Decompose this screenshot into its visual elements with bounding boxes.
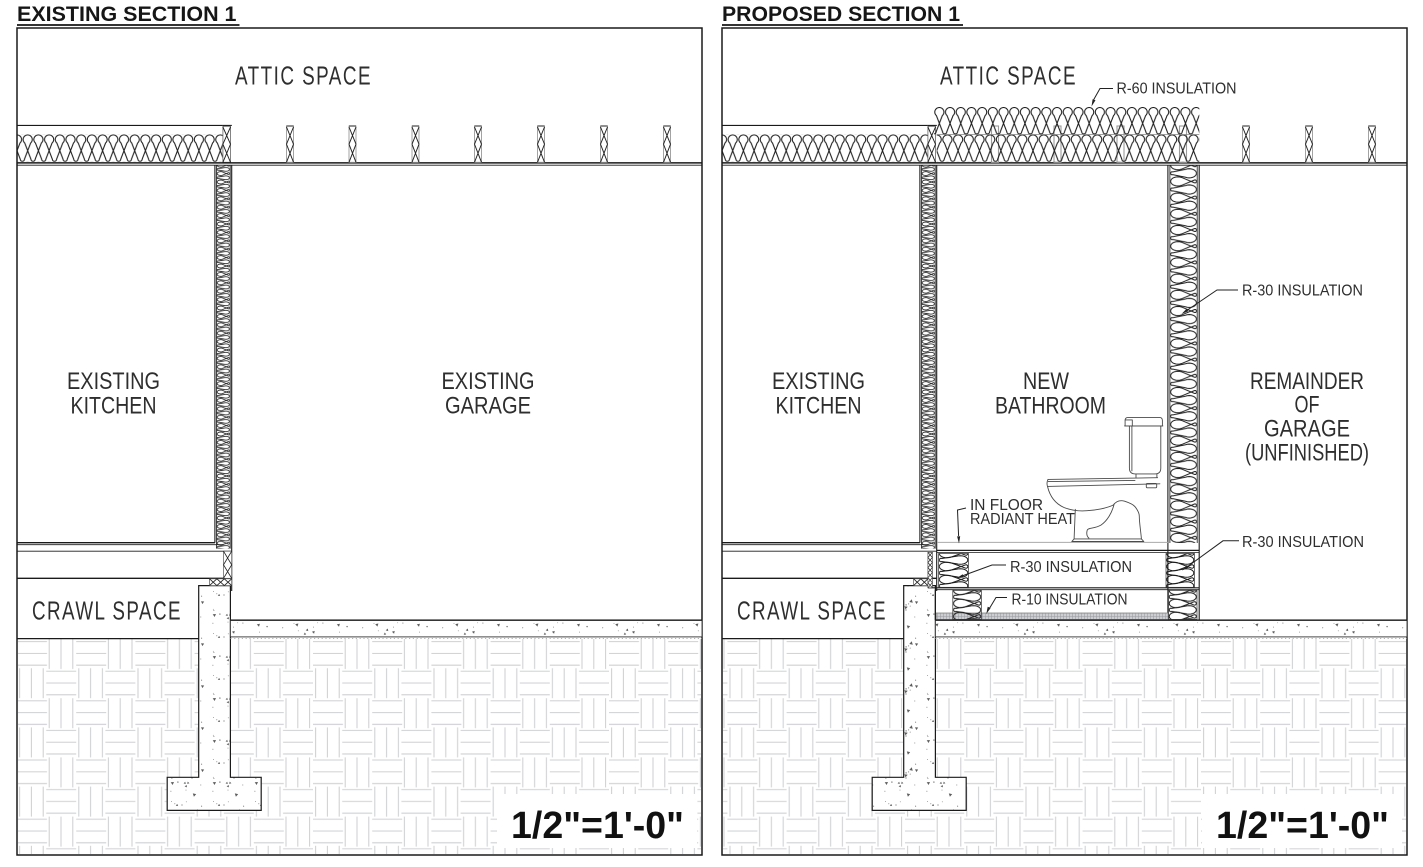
svg-text:EXISTING: EXISTING — [772, 368, 865, 395]
svg-text:EXISTING: EXISTING — [442, 368, 535, 395]
svg-text:PROPOSED SECTION 1: PROPOSED SECTION 1 — [722, 2, 960, 26]
svg-text:R-30 INSULATION: R-30 INSULATION — [1242, 283, 1363, 300]
svg-text:OF: OF — [1295, 392, 1320, 419]
svg-text:1/2"=1'-0": 1/2"=1'-0" — [1216, 805, 1389, 847]
svg-text:R-30 INSULATION: R-30 INSULATION — [1242, 534, 1364, 551]
svg-text:BATHROOM: BATHROOM — [995, 393, 1106, 420]
svg-text:R-10 INSULATION: R-10 INSULATION — [1012, 592, 1128, 609]
svg-text:EXISTING: EXISTING — [67, 368, 160, 395]
svg-text:NEW: NEW — [1023, 368, 1069, 395]
svg-text:(UNFINISHED): (UNFINISHED) — [1245, 440, 1369, 467]
svg-text:1/2"=1'-0": 1/2"=1'-0" — [511, 805, 684, 847]
svg-text:ATTIC SPACE: ATTIC SPACE — [940, 61, 1077, 91]
svg-text:KITCHEN: KITCHEN — [71, 393, 157, 420]
svg-text:CRAWL SPACE: CRAWL SPACE — [737, 596, 887, 626]
svg-text:CRAWL SPACE: CRAWL SPACE — [32, 596, 182, 626]
svg-text:R-60 INSULATION: R-60 INSULATION — [1117, 81, 1237, 98]
svg-text:EXISTING SECTION 1: EXISTING SECTION 1 — [17, 2, 237, 26]
svg-text:KITCHEN: KITCHEN — [776, 393, 862, 420]
svg-text:ATTIC SPACE: ATTIC SPACE — [235, 61, 372, 91]
svg-text:R-30 INSULATION: R-30 INSULATION — [1010, 559, 1132, 576]
svg-text:GARAGE: GARAGE — [1264, 416, 1350, 443]
svg-text:RADIANT HEAT: RADIANT HEAT — [970, 511, 1075, 528]
svg-text:GARAGE: GARAGE — [445, 393, 531, 420]
